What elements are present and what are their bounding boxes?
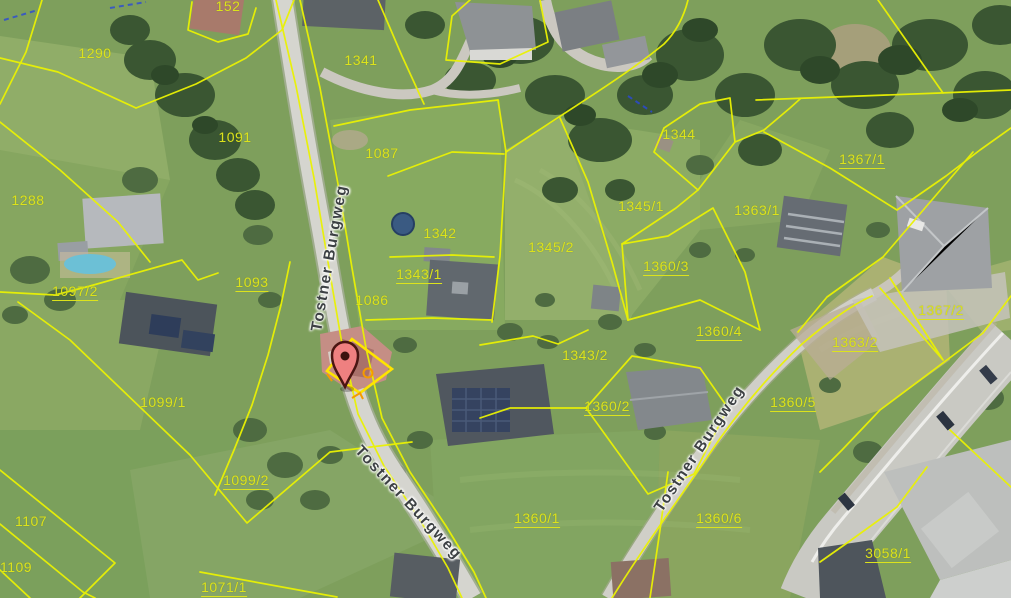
aerial-map-canvas[interactable]: 152129013411091134410871367/112881345/11… (0, 0, 1011, 598)
pin-dot (341, 352, 350, 361)
location-pin[interactable] (332, 342, 358, 392)
pin-shadow (340, 386, 354, 392)
parcel-boundary-lines (0, 0, 1011, 598)
pin-body[interactable] (332, 342, 358, 387)
